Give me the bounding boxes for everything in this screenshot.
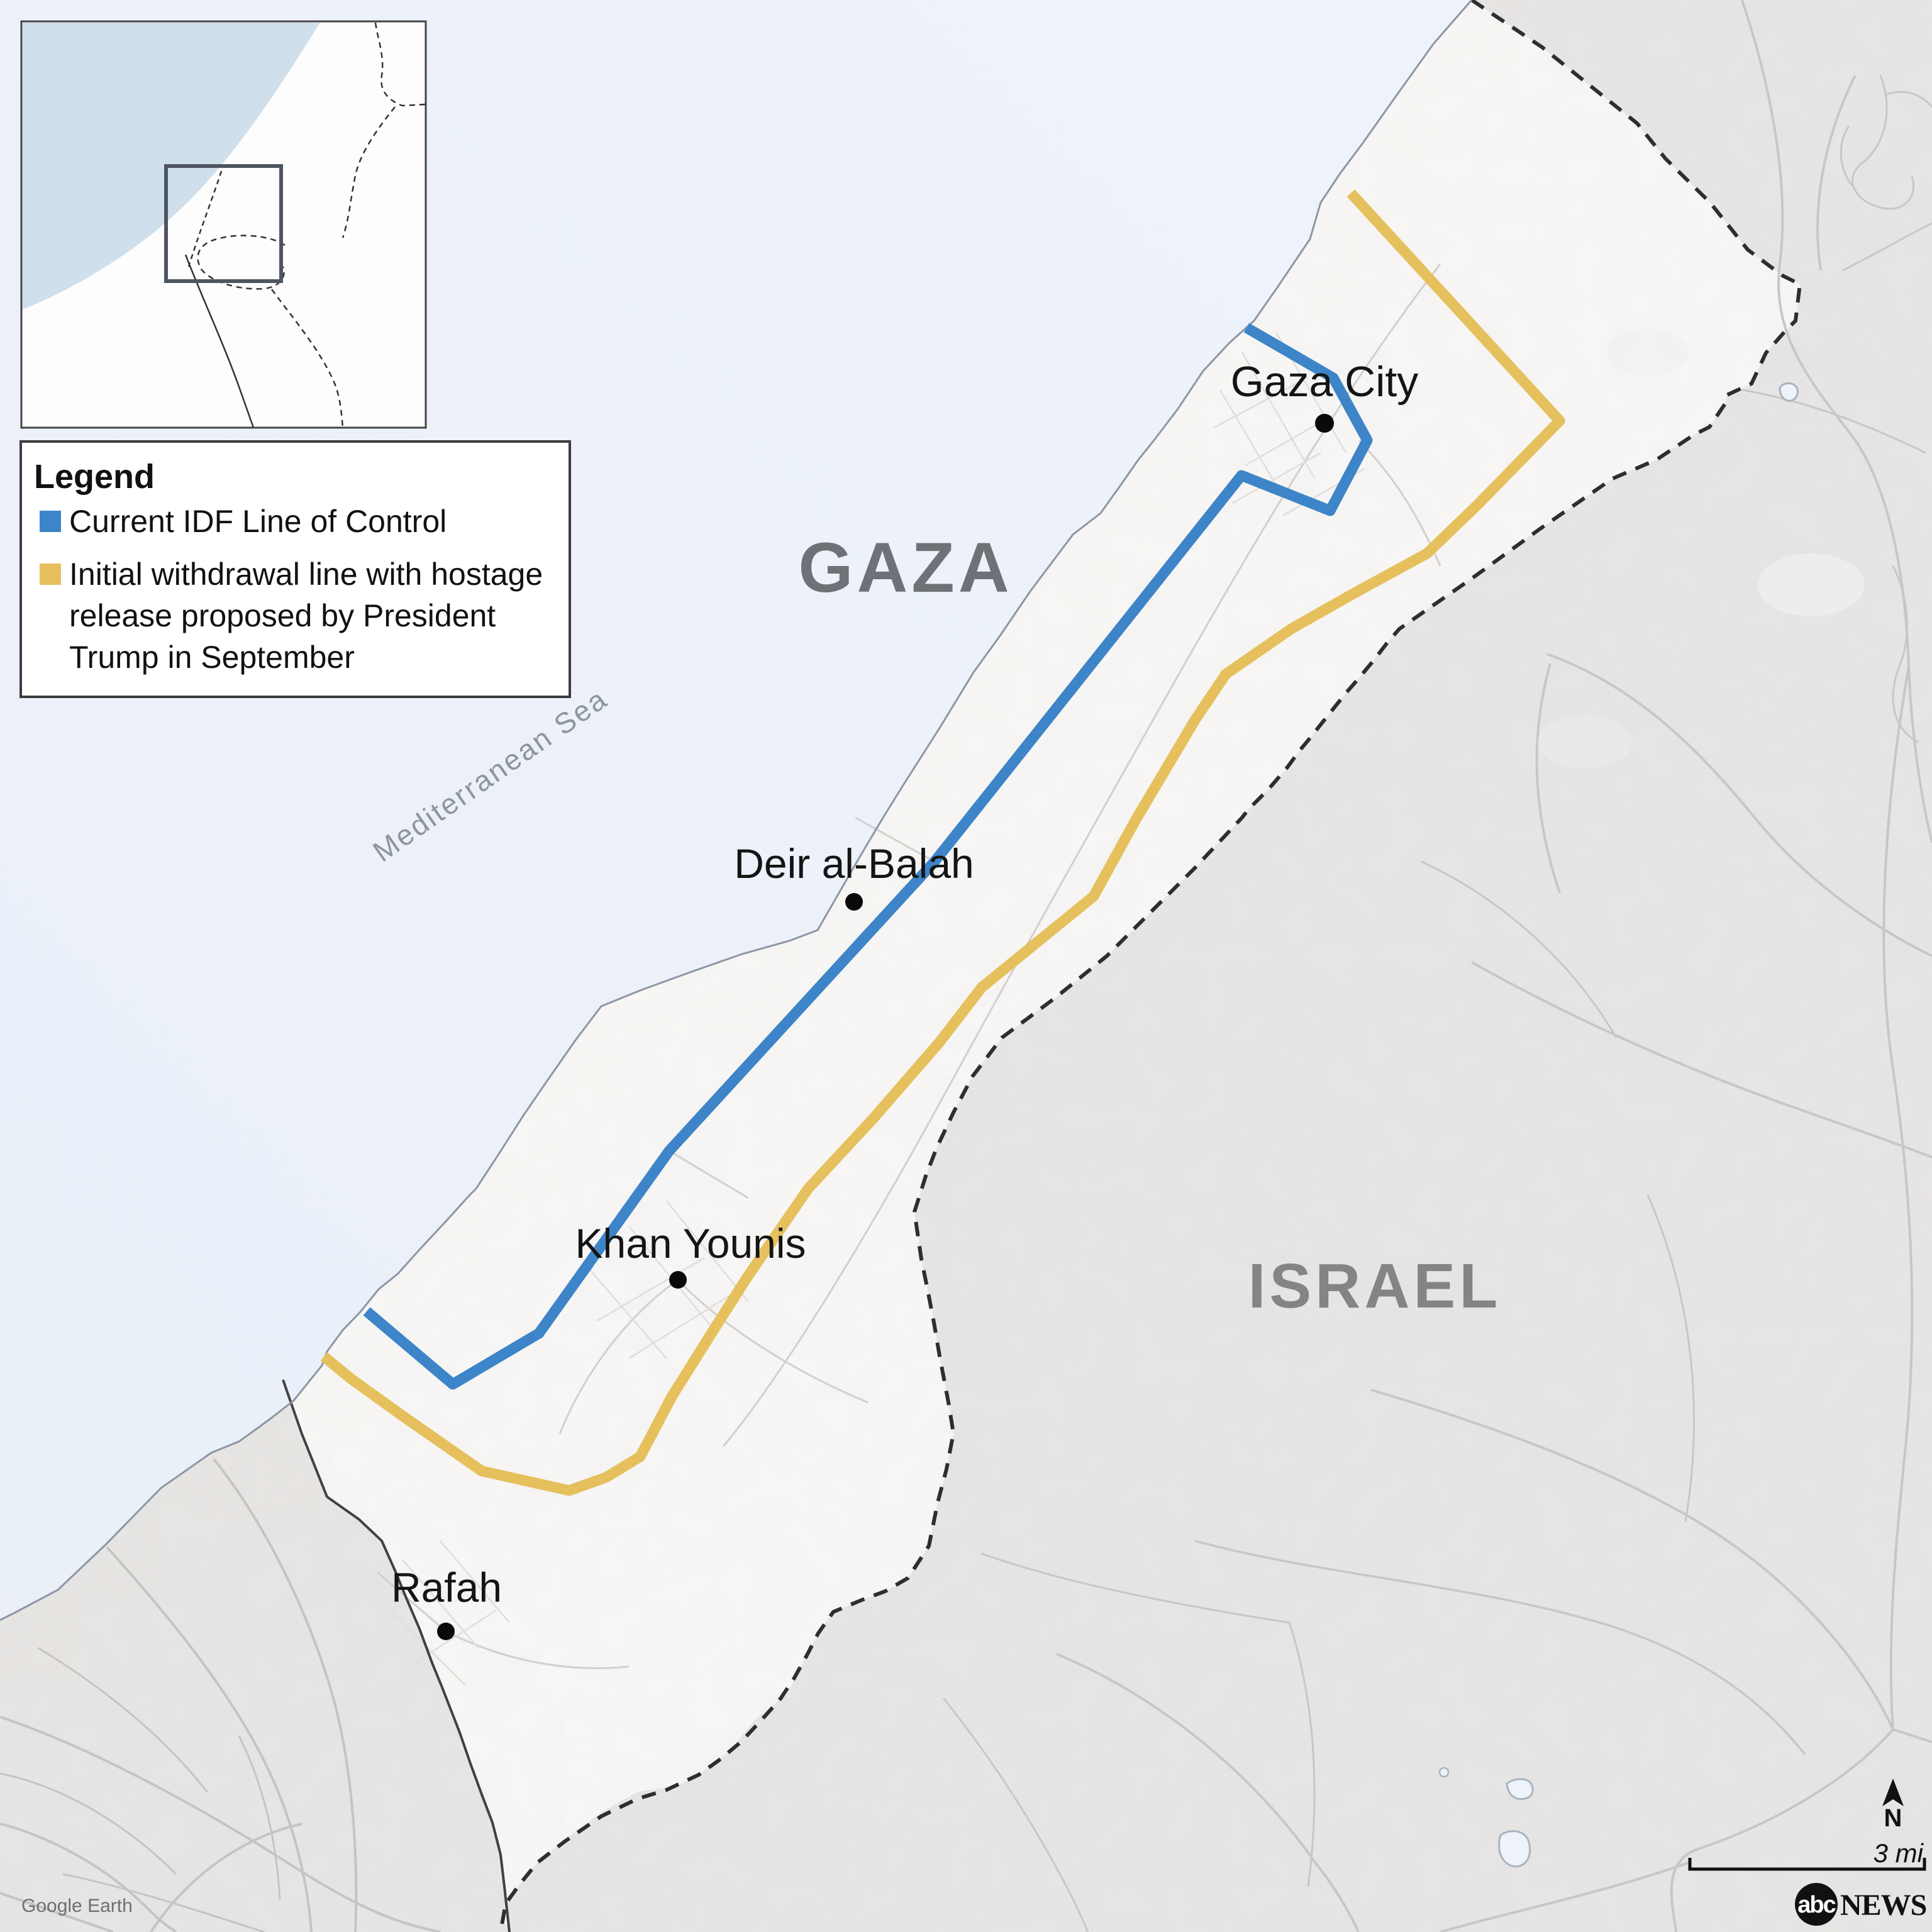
svg-text:Google Earth: Google Earth (21, 1896, 133, 1916)
svg-text:Trump in September: Trump in September (69, 640, 355, 675)
svg-text:abc: abc (1797, 1892, 1836, 1918)
svg-text:Initial withdrawal line with h: Initial withdrawal line with hostage (69, 557, 543, 592)
svg-text:Khan Younis: Khan Younis (575, 1220, 806, 1267)
svg-text:Deir al-Balah: Deir al-Balah (734, 840, 974, 887)
svg-text:Gaza City: Gaza City (1231, 358, 1419, 406)
svg-text:ISRAEL: ISRAEL (1248, 1251, 1502, 1321)
svg-text:N: N (1884, 1804, 1902, 1832)
svg-text:NEWS: NEWS (1840, 1889, 1926, 1922)
svg-text:release proposed by President: release proposed by President (69, 598, 496, 633)
svg-text:3 mi: 3 mi (1874, 1838, 1924, 1868)
svg-text:Rafah: Rafah (391, 1564, 502, 1611)
svg-text:Current IDF Line of Control: Current IDF Line of Control (69, 504, 447, 539)
svg-text:GAZA: GAZA (798, 528, 1013, 607)
svg-text:Legend: Legend (34, 458, 155, 496)
